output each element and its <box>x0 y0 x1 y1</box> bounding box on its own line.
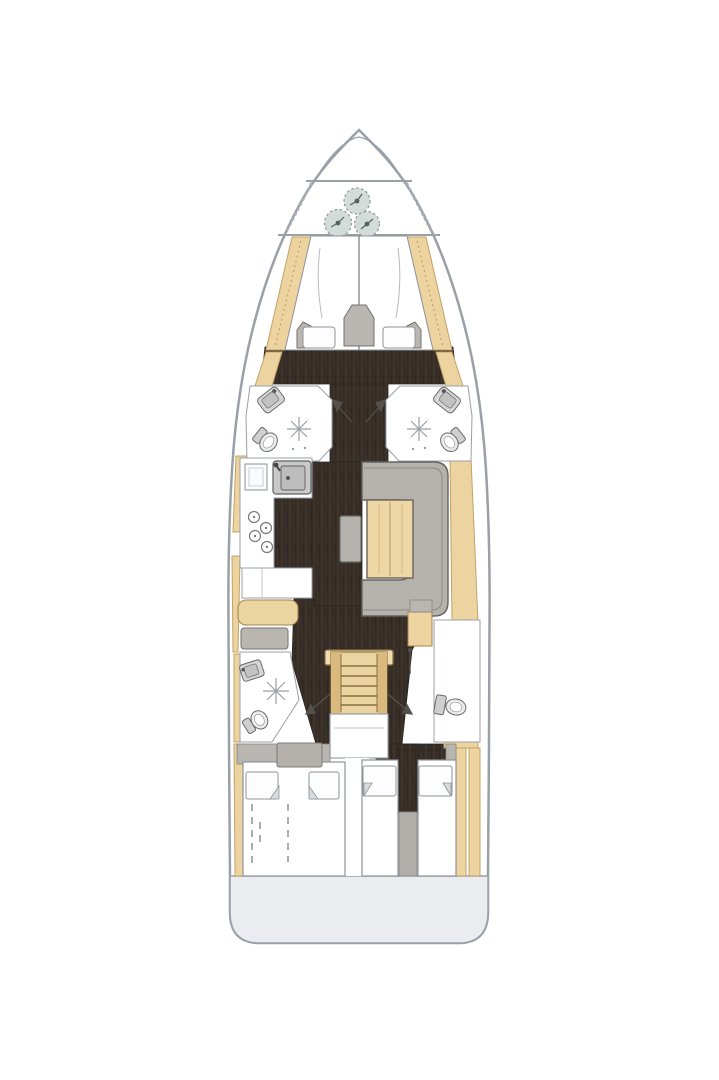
nav-seat-cushion <box>241 628 288 649</box>
pillow-left <box>363 766 396 796</box>
floor-galley-patch <box>274 492 312 570</box>
vanity-cabinet <box>408 612 432 646</box>
chart-table <box>242 568 312 598</box>
engine-box <box>330 714 388 758</box>
aft-cabin-port <box>243 743 345 876</box>
companionway-stairs <box>325 650 393 714</box>
floor-forward-corridor <box>330 384 388 464</box>
floor-forward-band <box>261 347 457 384</box>
nav-bench-wood <box>238 600 298 625</box>
head-forward-starboard <box>386 386 472 461</box>
head-forward-port <box>246 386 332 461</box>
galley-sink <box>273 461 311 494</box>
berth-center-step <box>344 305 374 346</box>
rope-coil-2 <box>325 210 352 237</box>
head-aft-stbd-room <box>434 620 480 742</box>
salon-table <box>367 500 413 578</box>
stairs-side-shade-left <box>331 652 341 714</box>
yacht-floorplan-diagram <box>0 0 719 1080</box>
trim-aft-cabin-starboard-1 <box>456 748 466 876</box>
forward-cabin <box>285 236 433 350</box>
head-fwd-port-room <box>246 386 332 461</box>
door-hinge-dot <box>408 648 412 652</box>
rope-coil-3 <box>355 212 380 237</box>
yacht-floorplan-canvas <box>0 0 719 1080</box>
stairs-side-shade-right <box>377 652 387 714</box>
aft-cabin-divider-gray-strip <box>399 812 417 876</box>
trim-aft-cabin-starboard-2 <box>469 748 480 876</box>
transom-deck <box>230 876 488 943</box>
cabinet-gray-top <box>410 600 432 612</box>
floor-aft-cabin-divider <box>398 744 418 814</box>
nightstand <box>277 743 322 767</box>
pillow-right <box>419 766 452 796</box>
swim-platform <box>230 876 488 943</box>
head-fwd-stbd-room <box>386 386 472 461</box>
ottoman-stool <box>340 516 361 562</box>
berth-pillow-port <box>303 327 335 348</box>
berth-pillow-starboard <box>383 327 415 348</box>
rope-coil-1 <box>344 188 370 214</box>
